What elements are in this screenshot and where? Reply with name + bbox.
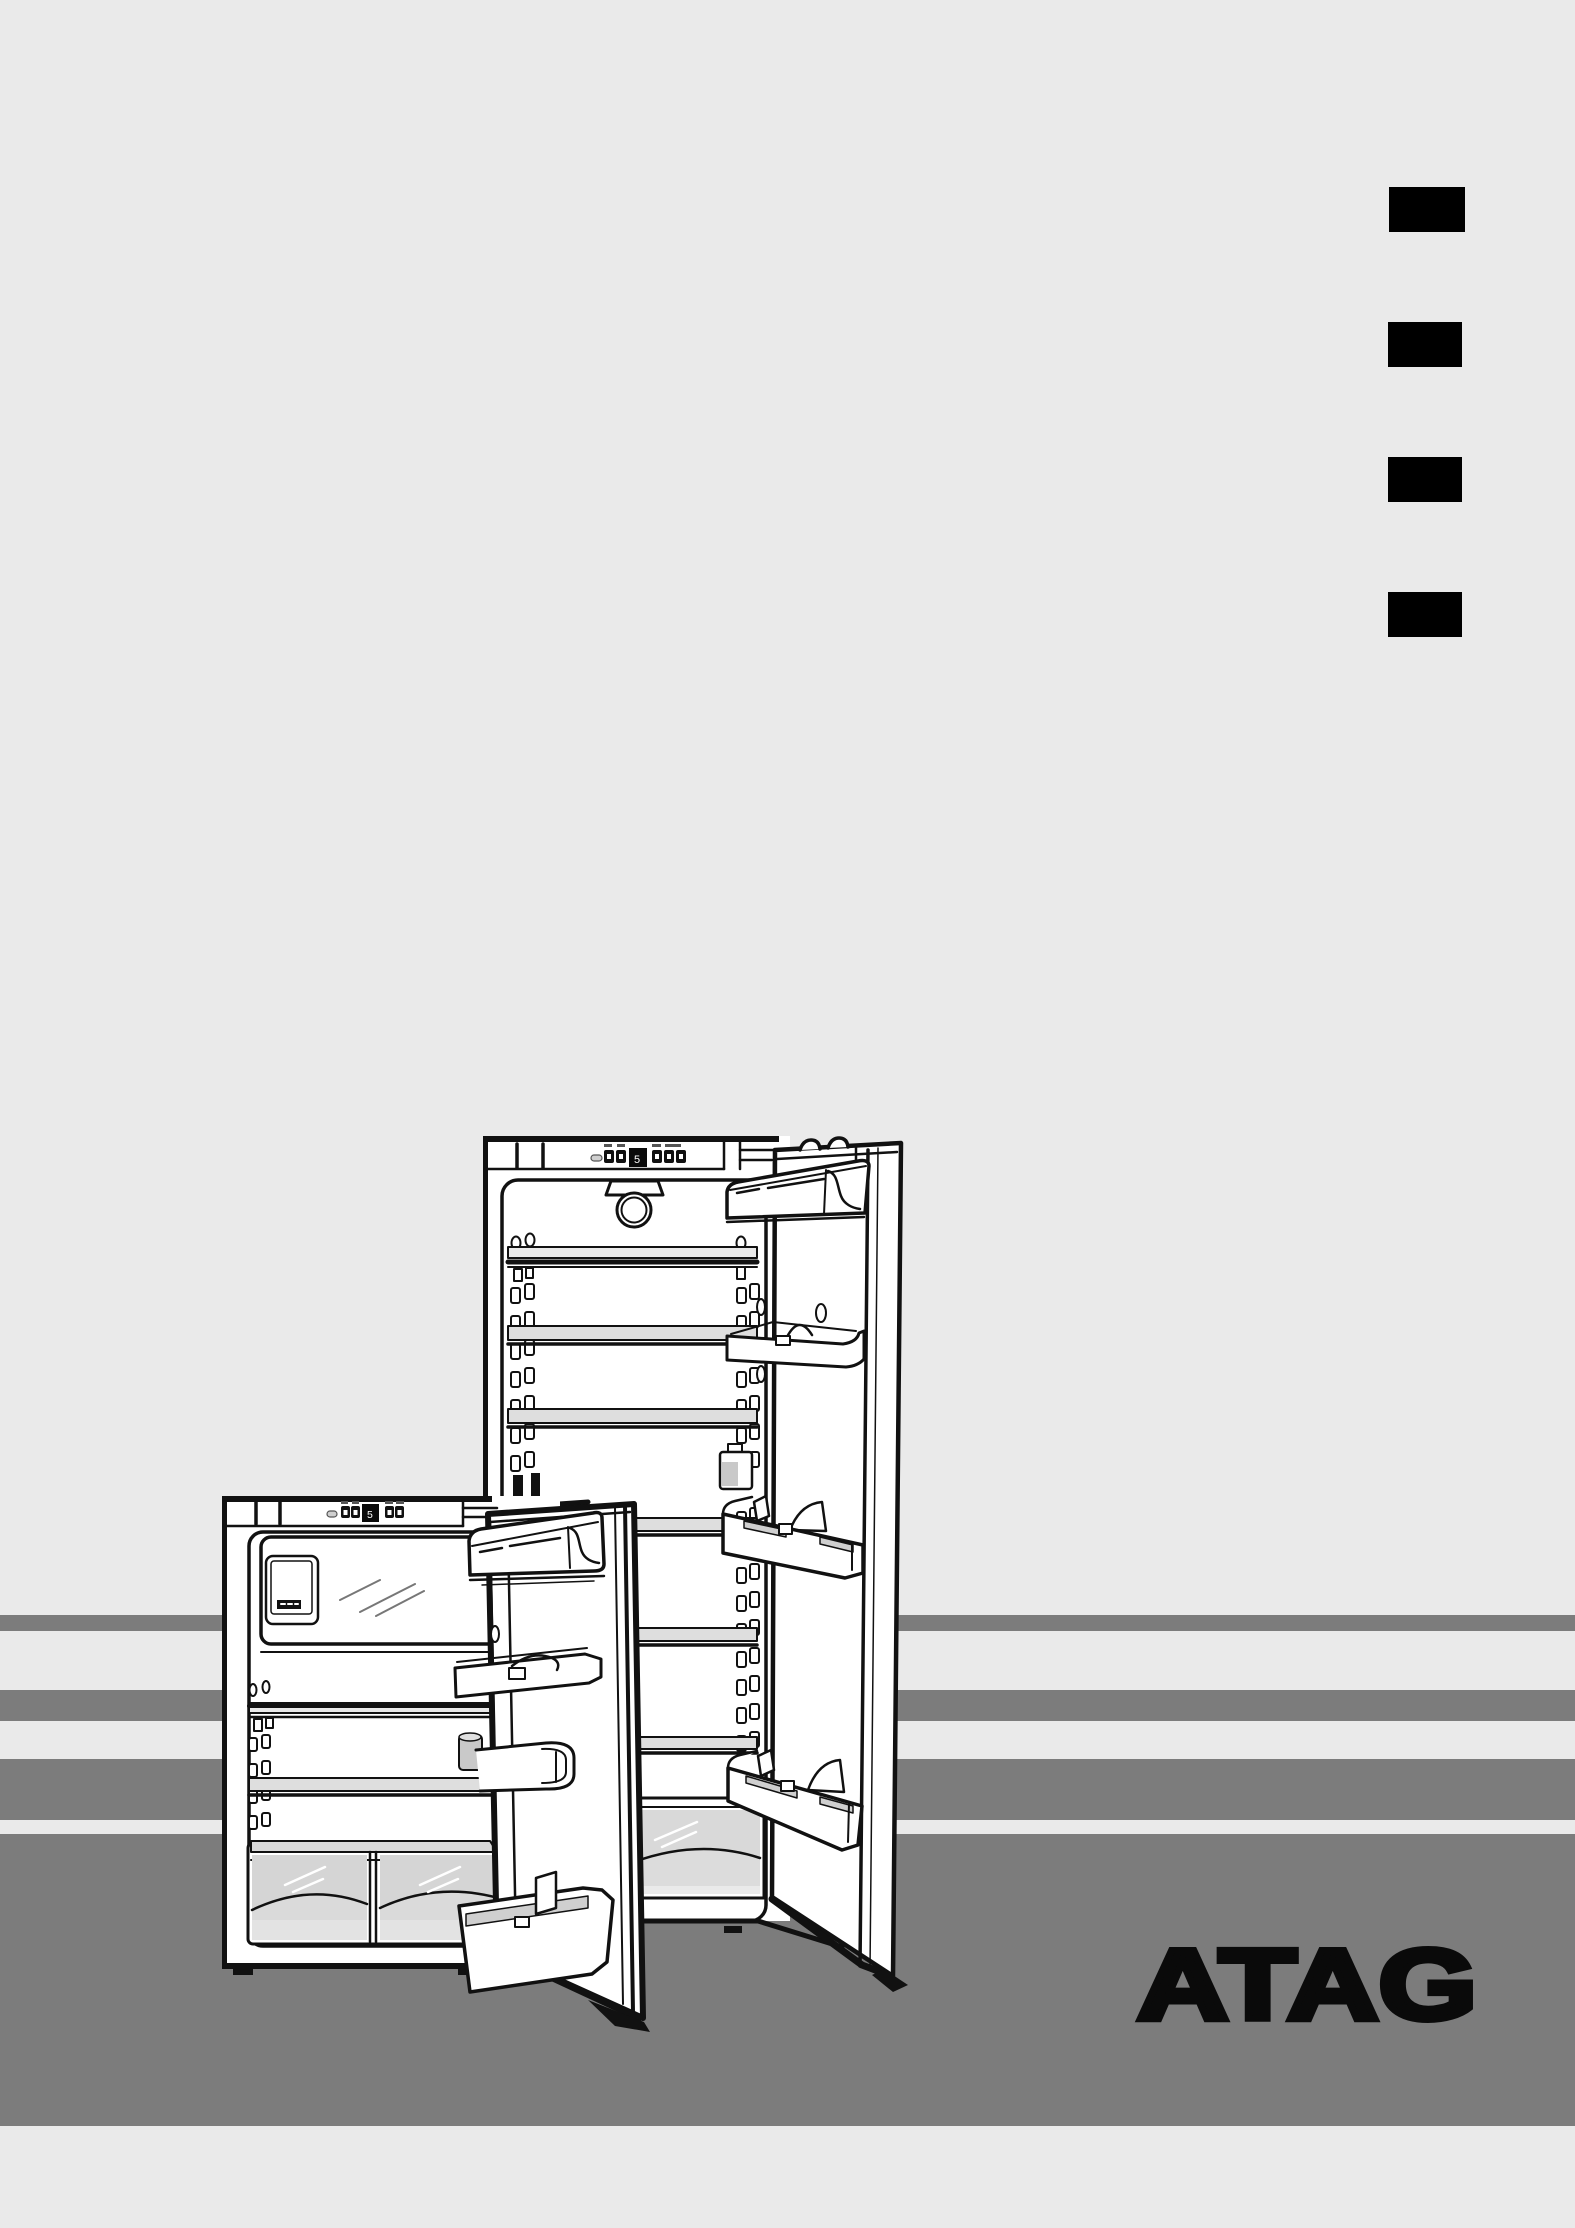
- svg-text:5: 5: [367, 1509, 373, 1521]
- svg-text:ATAG: ATAG: [1137, 1929, 1477, 2041]
- svg-text:5: 5: [634, 1154, 640, 1166]
